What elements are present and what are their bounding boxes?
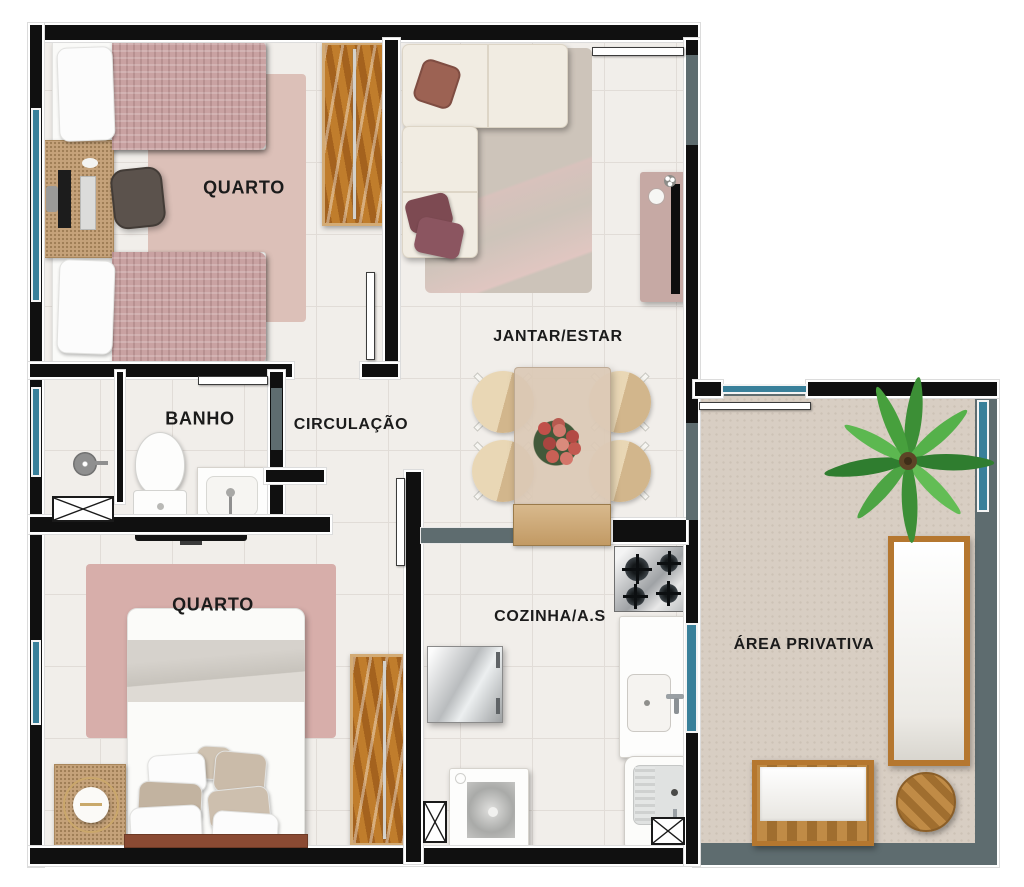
floor-plan: QUARTO JANTAR/ESTAR BANHO CIRCULAÇÃO [0,0,1024,887]
single-bed-bottom-blanket [112,252,266,364]
wall-bottom [30,848,698,864]
flower-blooms [538,422,551,435]
lamp-detail [80,803,102,806]
single-bed-top-pillow [56,46,115,142]
private-area-sliding-door [699,402,811,410]
desk-monitor [58,170,71,228]
bathroom-doorway-jamb [271,388,282,450]
tv-speaker [648,188,665,205]
palm-plant [818,368,998,554]
washer-dial [455,773,466,784]
shower-arm [95,461,108,465]
tub-washboard [635,767,655,821]
window-private-top [721,384,808,394]
bathroom-faucet-knob [226,488,235,497]
window-bedroom1 [31,108,41,302]
desk-speaker [46,186,58,212]
window-bathroom [31,387,41,477]
wall-bedroom1-living [385,40,398,366]
double-bed-blanket-fold [127,640,305,702]
single-bed-bottom-pillow [56,259,115,355]
bedroom2-label: QUARTO [172,595,254,616]
garden-bench [752,760,874,846]
refrigerator [427,646,503,723]
washing-machine [449,768,529,848]
toilet-bowl [135,432,185,496]
desk-chair [109,165,167,230]
duct-shaft-right [651,817,685,845]
window-kitchen [685,623,698,733]
wall-private-top-stub [695,382,721,396]
bed-headboard [124,834,308,848]
tv-console-plant [664,175,676,187]
entrance-door [592,47,684,56]
sun-lounger [888,536,970,766]
nightstand-lamp [73,787,109,823]
wall-right-entry-panel [686,55,698,145]
refrigerator-handle [496,652,500,668]
private-area-label: ÁREA PRIVATIVA [734,636,875,654]
kitchen-sink-drain [644,700,650,706]
wall-shower-partition [117,372,123,502]
kitchen-faucet-spout [674,698,679,714]
patio-round-table [896,772,956,832]
wall-right-mid-panel [686,423,698,520]
bathroom-label: BANHO [165,409,235,430]
wall-bedroom1-door-stub [362,364,398,377]
kitchen-label: COZINHA/A.S [494,608,606,626]
dining-sideboard [513,504,611,546]
tv-screen [671,184,680,294]
washer-drum-cap [488,807,498,817]
bedroom2-tv-stand [180,541,202,545]
toilet-flush-button [157,503,164,510]
refrigerator-handle [496,698,500,714]
bedroom1-door [366,272,375,360]
stove-burner [660,554,678,572]
tub-drain [671,789,678,796]
wall-top [30,25,698,40]
bedroom1-wardrobe [322,42,388,226]
bedroom1-label: QUARTO [203,178,285,199]
stove-cooktop [614,546,688,612]
wall-hallway-stub [266,470,324,482]
shower-head-icon [73,452,97,476]
stove-burner [659,584,678,603]
wall-kitchen-north [613,520,686,542]
wall-kitchen-west [406,472,421,862]
single-bed-top-blanket [112,40,266,150]
stove-burner [625,557,649,581]
bedroom2-door [396,478,405,566]
table-flower-centerpiece [528,414,584,472]
desk-keyboard [80,176,96,230]
palm-plant-icon [818,368,998,554]
bench-cushion [760,767,866,821]
duct-shaft-left [423,801,447,843]
bathroom-door [198,376,268,385]
bedroom2-tv [135,531,247,541]
shower-tray [52,496,114,522]
window-bedroom2 [31,640,41,725]
hallway-label: CIRCULAÇÃO [294,416,409,434]
desk-mouse [82,158,98,168]
stove-burner [626,587,645,606]
living-dining-label: JANTAR/ESTAR [493,328,623,346]
